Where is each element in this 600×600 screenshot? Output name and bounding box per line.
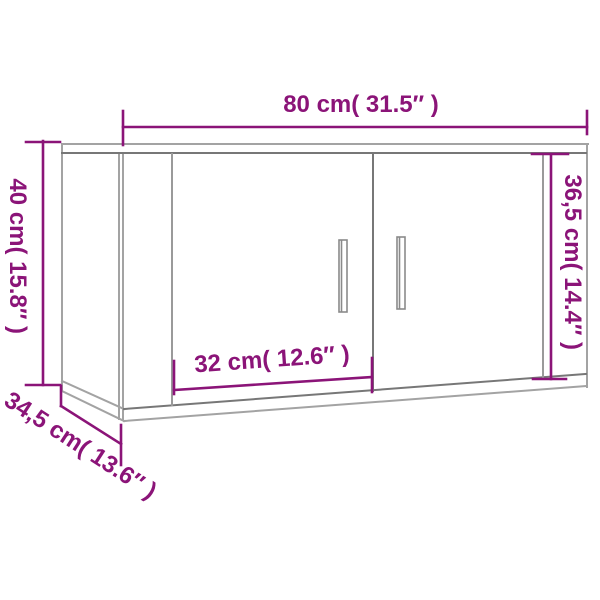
height-dimension-label: 40 cm( 15.8″ ) [4, 106, 30, 406]
door-width-dim-line [174, 377, 372, 390]
door-height-dimension-label: 36,5 cm( 14.4″ ) [559, 112, 585, 412]
dimension-lines [26, 111, 587, 465]
left-door-handle [339, 240, 347, 312]
width-dimension-label: 80 cm( 31.5″ ) [211, 92, 511, 118]
dimension-diagram: 80 cm( 31.5″ ) 40 cm( 15.8″ ) 36,5 cm( 1… [0, 0, 600, 600]
right-door-handle [397, 237, 405, 309]
cabinet-line-drawing [0, 0, 600, 600]
